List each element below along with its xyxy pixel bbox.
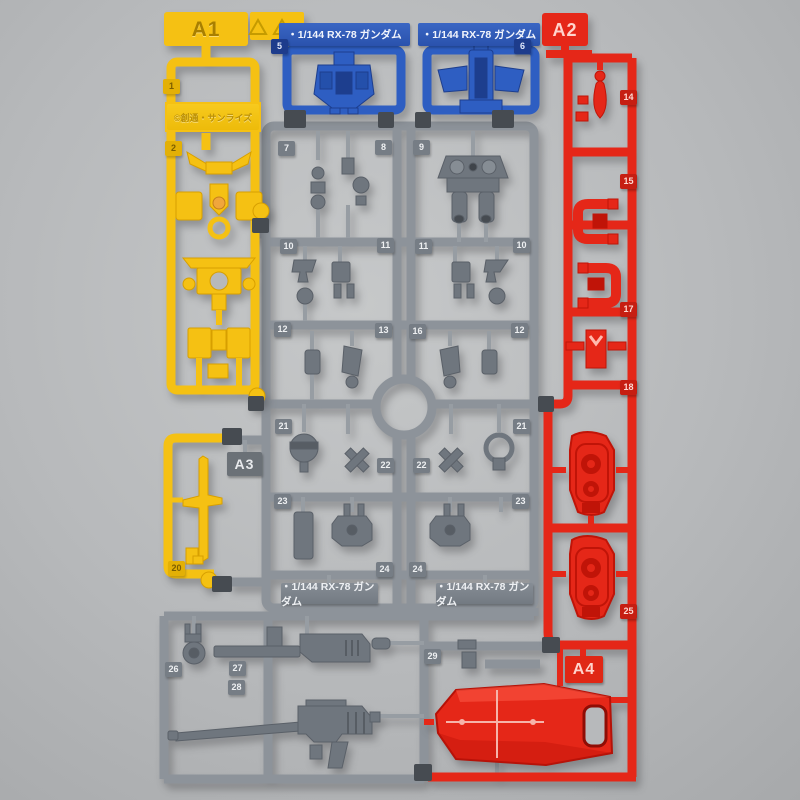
- part-number-tag: 1: [163, 79, 180, 94]
- foot-sole-part: [570, 432, 614, 515]
- runner-center-ring: [376, 379, 432, 435]
- gray-runner: [164, 126, 548, 779]
- part-number-tag: 21: [275, 419, 292, 434]
- part-number-tag: 6: [514, 39, 531, 54]
- part-number-tag: 22: [413, 458, 430, 473]
- part-number-tag: 7: [278, 141, 295, 156]
- gate-label-a2: A2: [545, 17, 585, 44]
- chest-part: [334, 52, 354, 65]
- shield-handle-hole: [584, 706, 606, 746]
- part-number-tag: 5: [271, 39, 288, 54]
- gate-label-a3: A3: [227, 452, 262, 476]
- product-photo: A1 A2 A3 A4 ・1/144 RX-78 ガンダム ・1/144 RX-…: [0, 0, 800, 800]
- blue-runner: [287, 44, 535, 114]
- part-number-tag: 23: [274, 494, 291, 509]
- gate-label-a1: A1: [170, 16, 242, 44]
- part-number-tag: 10: [513, 238, 530, 253]
- part-number-tag: 18: [620, 380, 637, 395]
- runner-name-plate-gray-left: ・1/144 RX-78 ガンダム: [281, 583, 378, 604]
- part-number-tag: 11: [415, 239, 432, 254]
- part-number-tag: 2: [165, 141, 182, 156]
- copyright-plate-text: ©創通・サンライズ: [167, 104, 259, 130]
- red-small-parts: [566, 71, 626, 368]
- part-number-tag: 13: [375, 323, 392, 338]
- part-number-tag: 22: [377, 458, 394, 473]
- part-number-tag: 10: [280, 239, 297, 254]
- part-number-tag: 17: [620, 302, 637, 317]
- shield-part: [436, 684, 612, 765]
- part-number-tag: 29: [424, 649, 441, 664]
- part-number-tag: 12: [511, 323, 528, 338]
- part-number-tag: 26: [165, 662, 182, 677]
- runner-name-plate-gray-right: ・1/144 RX-78 ガンダム: [436, 583, 533, 604]
- core-block-part: [183, 258, 255, 268]
- part-number-tag: 9: [413, 140, 430, 155]
- runner-name-plate-blue-left: ・1/144 RX-78 ガンダム: [279, 23, 410, 46]
- part-number-tag: 24: [376, 562, 393, 577]
- beam-rifle-part: [214, 627, 390, 662]
- chevron-part: [586, 330, 606, 368]
- part-number-tag: 28: [228, 680, 245, 695]
- part-number-tag: 24: [409, 562, 426, 577]
- clear-orange-part: [213, 197, 225, 209]
- runner-artwork: [0, 0, 800, 800]
- part-number-tag: 11: [377, 238, 394, 253]
- scope-part: [458, 640, 476, 649]
- part-number-tag: 15: [620, 174, 637, 189]
- gate-label-a4: A4: [565, 656, 603, 683]
- part-number-tag: 8: [375, 140, 392, 155]
- blue-parts: [314, 44, 524, 114]
- part-number-tag: 12: [274, 322, 291, 337]
- part-number-tag: 14: [620, 90, 637, 105]
- gray-runner-rails: [164, 126, 548, 779]
- part-number-tag: 27: [229, 661, 246, 676]
- part-number-tag: 23: [512, 494, 529, 509]
- waist-part: [188, 328, 211, 358]
- part-number-tag: 21: [513, 419, 530, 434]
- beam-rifle-grip-part: [168, 700, 380, 768]
- part-number-tag: 25: [620, 604, 637, 619]
- part-number-tag: 20: [168, 561, 185, 576]
- beam-javelin-blade-part: [183, 456, 222, 561]
- part-number-tag: 16: [409, 324, 426, 339]
- foot-sole-part-copy: [570, 536, 614, 619]
